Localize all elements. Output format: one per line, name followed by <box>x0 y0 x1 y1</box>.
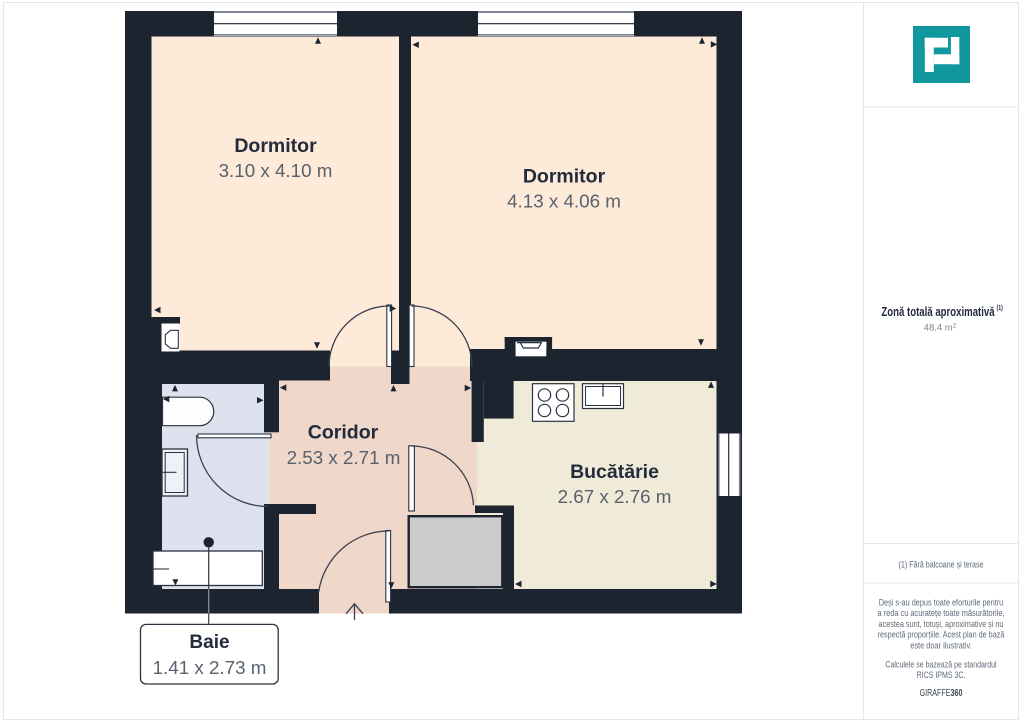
svg-text:48.4 m2: 48.4 m2 <box>924 323 957 334</box>
svg-text:Dormitor: Dormitor <box>523 166 606 188</box>
svg-text:1.41 x 2.73 m: 1.41 x 2.73 m <box>153 657 267 678</box>
svg-text:2.67 x 2.76 m: 2.67 x 2.76 m <box>558 486 672 507</box>
svg-text:4.13 x 4.06 m: 4.13 x 4.06 m <box>507 191 621 212</box>
svg-text:2.53 x 2.71 m: 2.53 x 2.71 m <box>287 447 401 468</box>
svg-text:Baie: Baie <box>189 632 229 653</box>
svg-text:respectă proporțiile. Acest pl: respectă proporțiile. Acest plan de bază <box>878 629 1005 640</box>
svg-text:Coridor: Coridor <box>308 422 379 444</box>
svg-text:3.10 x 4.10 m: 3.10 x 4.10 m <box>219 160 333 181</box>
svg-text:GIRAFFE360: GIRAFFE360 <box>920 687 963 699</box>
svg-text:Bucătărie: Bucătărie <box>570 461 659 483</box>
svg-text:Dormitor: Dormitor <box>234 135 317 157</box>
svg-text:este doar ilustrativ.: este doar ilustrativ. <box>910 639 972 650</box>
svg-text:(1): (1) <box>997 304 1003 312</box>
svg-text:Deși s-au depus toate eforturi: Deși s-au depus toate eforturile pentru <box>879 597 1004 608</box>
svg-text:acestea sunt, totuși, aproxima: acestea sunt, totuși, aproximative și nu <box>879 618 1004 629</box>
svg-text:(1) Fără balcoane și terase: (1) Fără balcoane și terase <box>899 558 984 569</box>
svg-text:RICS IPMS 3C.: RICS IPMS 3C. <box>917 669 966 680</box>
svg-text:Zonă totală aproximativă: Zonă totală aproximativă <box>881 306 995 320</box>
svg-text:a reda cu acuratețe toate măsu: a reda cu acuratețe toate măsurătorile, <box>878 607 1005 618</box>
